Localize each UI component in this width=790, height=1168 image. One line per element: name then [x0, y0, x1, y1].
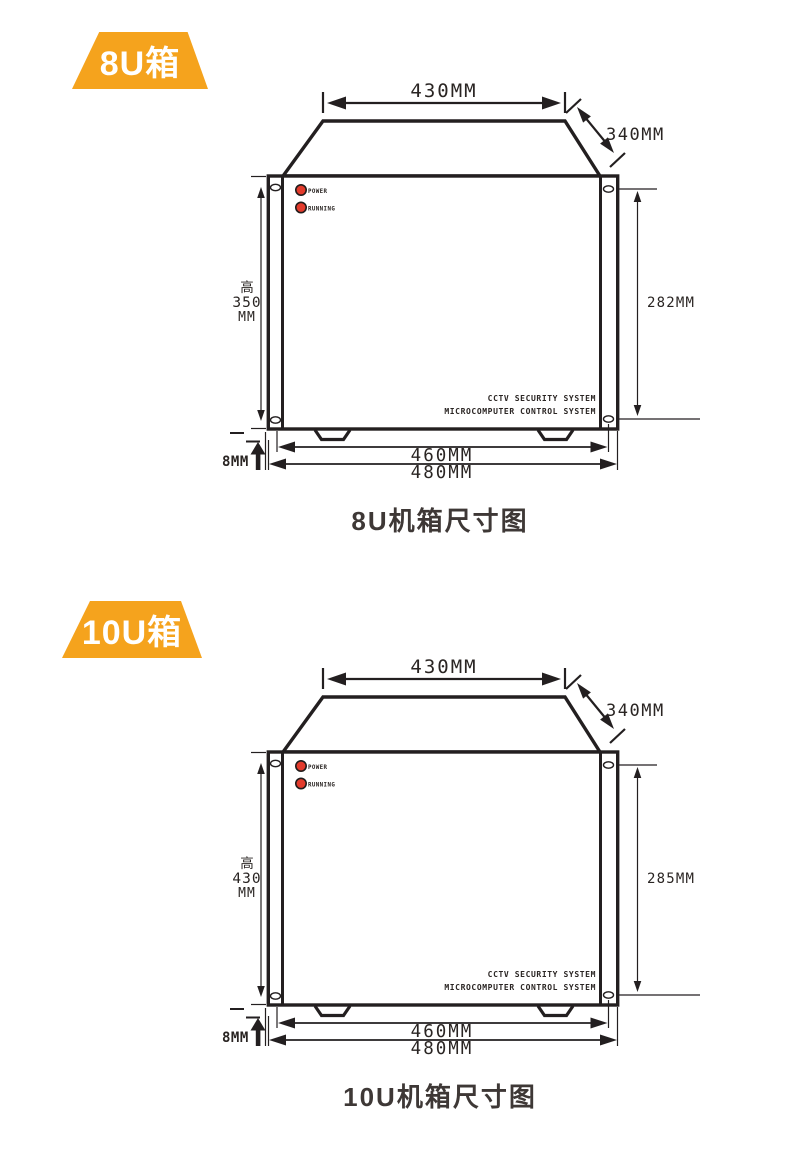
running-led-label: RUNNING: [308, 206, 335, 212]
foot-height-label: 8MM: [222, 454, 249, 470]
top-width-dimension: 430MM: [323, 80, 565, 113]
front-panel-outline: [268, 176, 617, 429]
foot-height-dimension: 8MM: [222, 1008, 266, 1046]
brand-line1: CCTV SECURITY SYSTEM: [488, 970, 596, 979]
arrow-shaft: [256, 452, 261, 470]
arrowhead-up-icon: [251, 1018, 266, 1031]
running-led-icon: [296, 778, 306, 788]
power-led-label: POWER: [308, 189, 328, 195]
height-dimension: 高 430 MM: [232, 753, 266, 1005]
front-panel: POWER RUNNING CCTV SECURITY SYSTEM MICRO…: [268, 176, 617, 440]
panel-height-dimension: 285MM: [616, 765, 700, 995]
arrowhead-left-icon: [278, 1018, 295, 1029]
arrowhead-up-icon: [257, 763, 265, 774]
arrowhead-right-icon: [600, 459, 617, 470]
panel-height-label: 282MM: [647, 295, 695, 311]
top-panel-outline: [283, 697, 600, 752]
depth-label: 340MM: [606, 701, 665, 721]
arrowhead-up-icon: [251, 442, 266, 455]
screw-hole: [604, 416, 614, 422]
brand-line2: MICROCOMPUTER CONTROL SYSTEM: [444, 983, 596, 992]
enclosure-diagram: 430MM 340MM: [0, 0, 790, 560]
running-led-label: RUNNING: [308, 782, 335, 788]
dim-end-tick: [610, 729, 625, 743]
front-panel: POWER RUNNING CCTV SECURITY SYSTEM MICRO…: [268, 752, 617, 1016]
screw-hole: [271, 184, 281, 190]
size-badge-label: 10U箱: [82, 605, 182, 654]
panel-height-dimension: 282MM: [616, 189, 700, 419]
arrowhead-up-icon: [634, 767, 642, 778]
power-led-label: POWER: [308, 765, 328, 771]
arrowhead-right-icon: [600, 1035, 617, 1046]
top-width-dimension: 430MM: [323, 656, 565, 689]
arrowhead-right-icon: [542, 97, 561, 110]
power-led-icon: [296, 761, 306, 771]
overall-width-label: 480MM: [411, 463, 474, 483]
screw-hole: [271, 993, 281, 999]
foot-height-dimension: 8MM: [222, 432, 266, 470]
right-foot: [538, 1006, 573, 1016]
depth-label: 340MM: [606, 125, 665, 145]
dim-line: [584, 692, 607, 720]
dim-end-tick: [610, 153, 625, 167]
left-foot: [315, 1006, 350, 1016]
running-led-icon: [296, 202, 306, 212]
arrowhead-left-icon: [269, 459, 286, 470]
arrowhead-up-icon: [257, 187, 265, 198]
page: 430MM 340MM: [0, 0, 790, 1168]
height-unit: MM: [238, 886, 256, 901]
arrowhead-up-icon: [634, 191, 642, 202]
screw-hole: [271, 417, 281, 423]
arrowhead-down-icon: [634, 405, 642, 416]
enclosure-diagram: 430MM 340MM: [0, 576, 790, 1136]
arrowhead-down-icon: [257, 986, 265, 997]
arrowhead-down-icon: [634, 981, 642, 992]
height-label-cn: 高: [240, 855, 254, 872]
arrowhead-left-icon: [327, 673, 346, 686]
arrowhead-down-icon: [257, 410, 265, 421]
height-unit: MM: [238, 310, 256, 325]
screw-hole: [271, 760, 281, 766]
power-led-icon: [296, 185, 306, 195]
brand-line2: MICROCOMPUTER CONTROL SYSTEM: [444, 407, 596, 416]
arrow-shaft: [256, 1028, 261, 1046]
screw-hole: [604, 992, 614, 998]
screw-hole: [604, 186, 614, 192]
foot-height-label: 8MM: [222, 1030, 249, 1046]
arrowhead-left-icon: [327, 97, 346, 110]
top-width-label: 430MM: [410, 80, 477, 102]
dim-line: [584, 116, 607, 144]
size-badge-label: 8U箱: [100, 36, 180, 85]
front-panel-outline: [268, 752, 617, 1005]
panel-height-label: 285MM: [647, 871, 695, 887]
arrowhead-right-icon: [542, 673, 561, 686]
height-value: 430: [232, 871, 261, 887]
height-label-cn: 高: [240, 279, 254, 296]
height-dimension: 高 350 MM: [232, 177, 266, 429]
brand-line1: CCTV SECURITY SYSTEM: [488, 394, 596, 403]
top-width-label: 430MM: [410, 656, 477, 678]
height-value: 350: [232, 295, 261, 311]
arrowhead-right-icon: [591, 442, 608, 453]
diagrams-container: 430MM 340MM: [0, 0, 790, 1168]
dimension-drawing: 430MM 340MM: [0, 576, 790, 1136]
left-foot: [315, 430, 350, 440]
diagram-caption: 10U机箱尺寸图: [90, 1077, 790, 1114]
arrowhead-left-icon: [269, 1035, 286, 1046]
arrowhead-left-icon: [278, 442, 295, 453]
right-foot: [538, 430, 573, 440]
top-panel-outline: [283, 121, 600, 176]
overall-width-label: 480MM: [411, 1039, 474, 1059]
diagram-caption: 8U机箱尺寸图: [90, 501, 790, 538]
arrowhead-right-icon: [591, 1018, 608, 1029]
screw-hole: [604, 762, 614, 768]
